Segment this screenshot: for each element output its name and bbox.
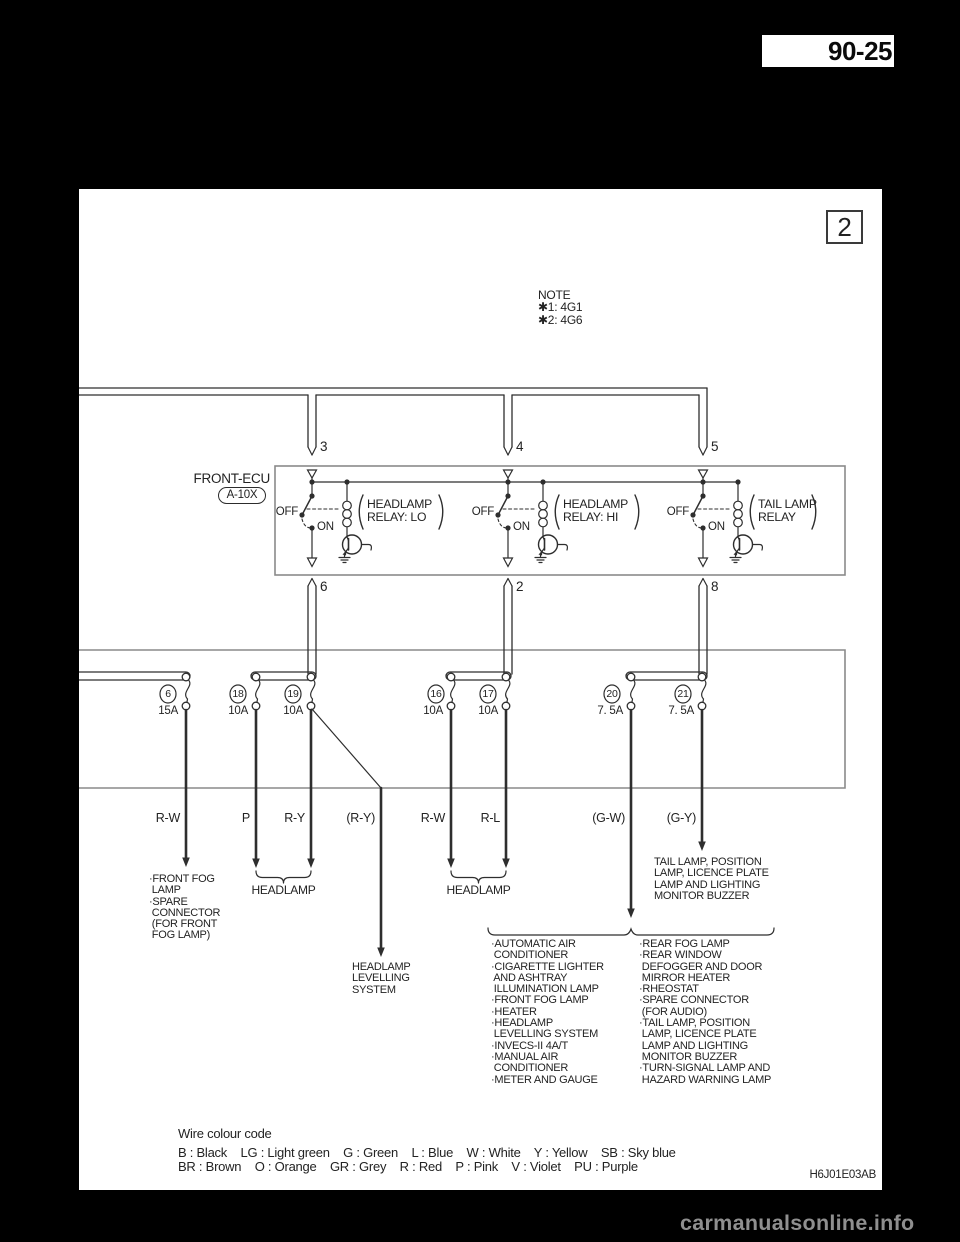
relay-on-label: ON [513, 521, 530, 533]
wire-label: (G-Y) [646, 811, 696, 825]
connector-bottom-pin: 6 [320, 579, 327, 594]
page-number: 90-25 [760, 35, 892, 67]
fuse-number: 18 [228, 688, 248, 700]
dest-headlamp-levelling: HEADLAMP LEVELLING SYSTEM [352, 962, 411, 996]
fuse-rating: 15A [138, 705, 178, 717]
dest-front-fog-lamp: ·FRONT FOG LAMP ·SPARE CONNECTOR (FOR FR… [149, 874, 220, 942]
fuse-number: 19 [283, 688, 303, 700]
fuse-rating: 7. 5A [583, 705, 623, 717]
dest-group-right: ·REAR FOG LAMP ·REAR WINDOW DEFOGGER AND… [639, 939, 771, 1086]
fuse-number: 21 [673, 688, 693, 700]
wire-label: (R-Y) [325, 811, 375, 825]
relay-name: HEADLAMP RELAY: HI [563, 498, 628, 523]
page-header-patch: 90-25 [762, 35, 894, 67]
dest-group-left: ·AUTOMATIC AIR CONDITIONER ·CIGARETTE LI… [491, 939, 604, 1086]
dest-tail-lamp: TAIL LAMP, POSITION LAMP, LICENCE PLATE … [654, 857, 769, 902]
connector-bottom-pin: 8 [711, 579, 718, 594]
fuse-number: 6 [158, 688, 178, 700]
dest-headlamp: HEADLAMP [248, 883, 320, 897]
wire-label: R-W [395, 811, 445, 825]
wire-colour-code-row1: B : Black LG : Light green G : Green L :… [178, 1145, 676, 1160]
fuse-rating: 10A [403, 705, 443, 717]
connector-bottom-pin: 2 [516, 579, 523, 594]
wiring-diagram-sheet: 2 NOTE ✱1: 4G1 ✱2: 4G6 FRONT-ECU A-10X ·… [79, 189, 882, 1190]
fuse-number: 17 [478, 688, 498, 700]
wire-label: R-L [450, 811, 500, 825]
relay-name: TAIL LAMP RELAY [758, 498, 817, 523]
wire-colour-code-title: Wire colour code [178, 1126, 272, 1141]
connector-top-pin: 5 [711, 439, 718, 454]
wire-label: R-Y [255, 811, 305, 825]
relay-name: HEADLAMP RELAY: LO [367, 498, 432, 523]
fuse-number: 20 [602, 688, 622, 700]
fuse-rating: 10A [458, 705, 498, 717]
ecu-connector-label: A-10X [218, 487, 266, 504]
dest-headlamp: HEADLAMP [443, 883, 515, 897]
wire-label: R-W [130, 811, 180, 825]
front-ecu-label: FRONT-ECU [139, 471, 270, 486]
wire-label: (G-W) [575, 811, 625, 825]
note-lines: ✱1: 4G1 ✱2: 4G6 [538, 301, 582, 326]
fuse-rating: 10A [208, 705, 248, 717]
relay-off-label: OFF [460, 506, 494, 518]
wire-colour-code-row2: BR : Brown O : Orange GR : Grey R : Red … [178, 1159, 638, 1174]
watermark: carmanualsonline.info [680, 1211, 915, 1236]
fuse-rating: 10A [263, 705, 303, 717]
connector-top-pin: 4 [516, 439, 523, 454]
connector-top-pin: 3 [320, 439, 327, 454]
relay-on-label: ON [708, 521, 725, 533]
wire-label: P [200, 811, 250, 825]
diagram-code: H6J01E03AB [739, 1169, 876, 1181]
relay-off-label: OFF [264, 506, 298, 518]
figure-number-box: 2 [826, 210, 863, 244]
relay-off-label: OFF [655, 506, 689, 518]
fuse-number: 16 [426, 688, 446, 700]
relay-on-label: ON [317, 521, 334, 533]
fuse-rating: 7. 5A [654, 705, 694, 717]
